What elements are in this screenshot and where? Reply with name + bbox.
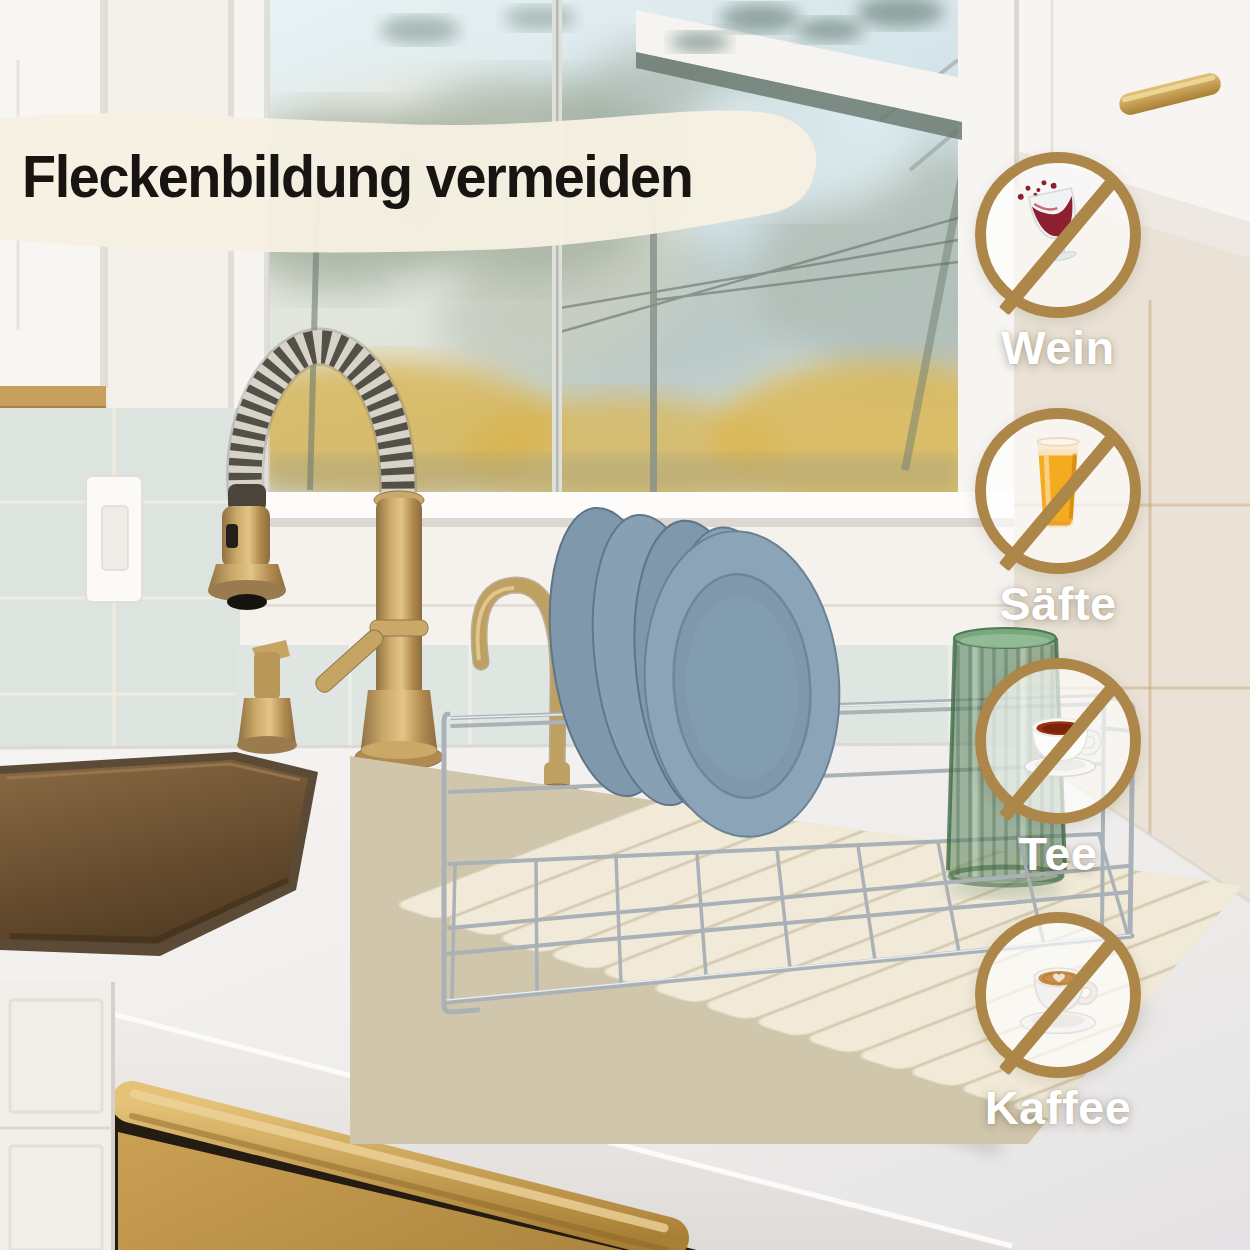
prohibited-item-tea: Tee xyxy=(958,658,1158,881)
base-drawers xyxy=(0,982,115,1250)
no-sign-circle xyxy=(975,408,1141,574)
headline-text: Fleckenbildung vermeiden xyxy=(22,142,692,211)
product-marketing-image: Fleckenbildung vermeiden Wein xyxy=(0,0,1250,1250)
prohibited-label: Säfte xyxy=(958,576,1158,631)
prohibited-list: Wein Säfte xyxy=(958,0,1158,1250)
no-sign-circle xyxy=(975,912,1141,1078)
no-sign-circle xyxy=(975,658,1141,824)
prohibited-item-wine: Wein xyxy=(958,152,1158,375)
light-switch xyxy=(86,476,142,602)
prohibited-label: Wein xyxy=(958,320,1158,375)
prohibited-item-juice: Säfte xyxy=(958,408,1158,631)
no-sign-circle xyxy=(975,152,1141,318)
prohibited-label: Kaffee xyxy=(958,1080,1158,1135)
prohibited-label: Tee xyxy=(958,826,1158,881)
prohibited-item-coffee: Kaffee xyxy=(958,912,1158,1135)
